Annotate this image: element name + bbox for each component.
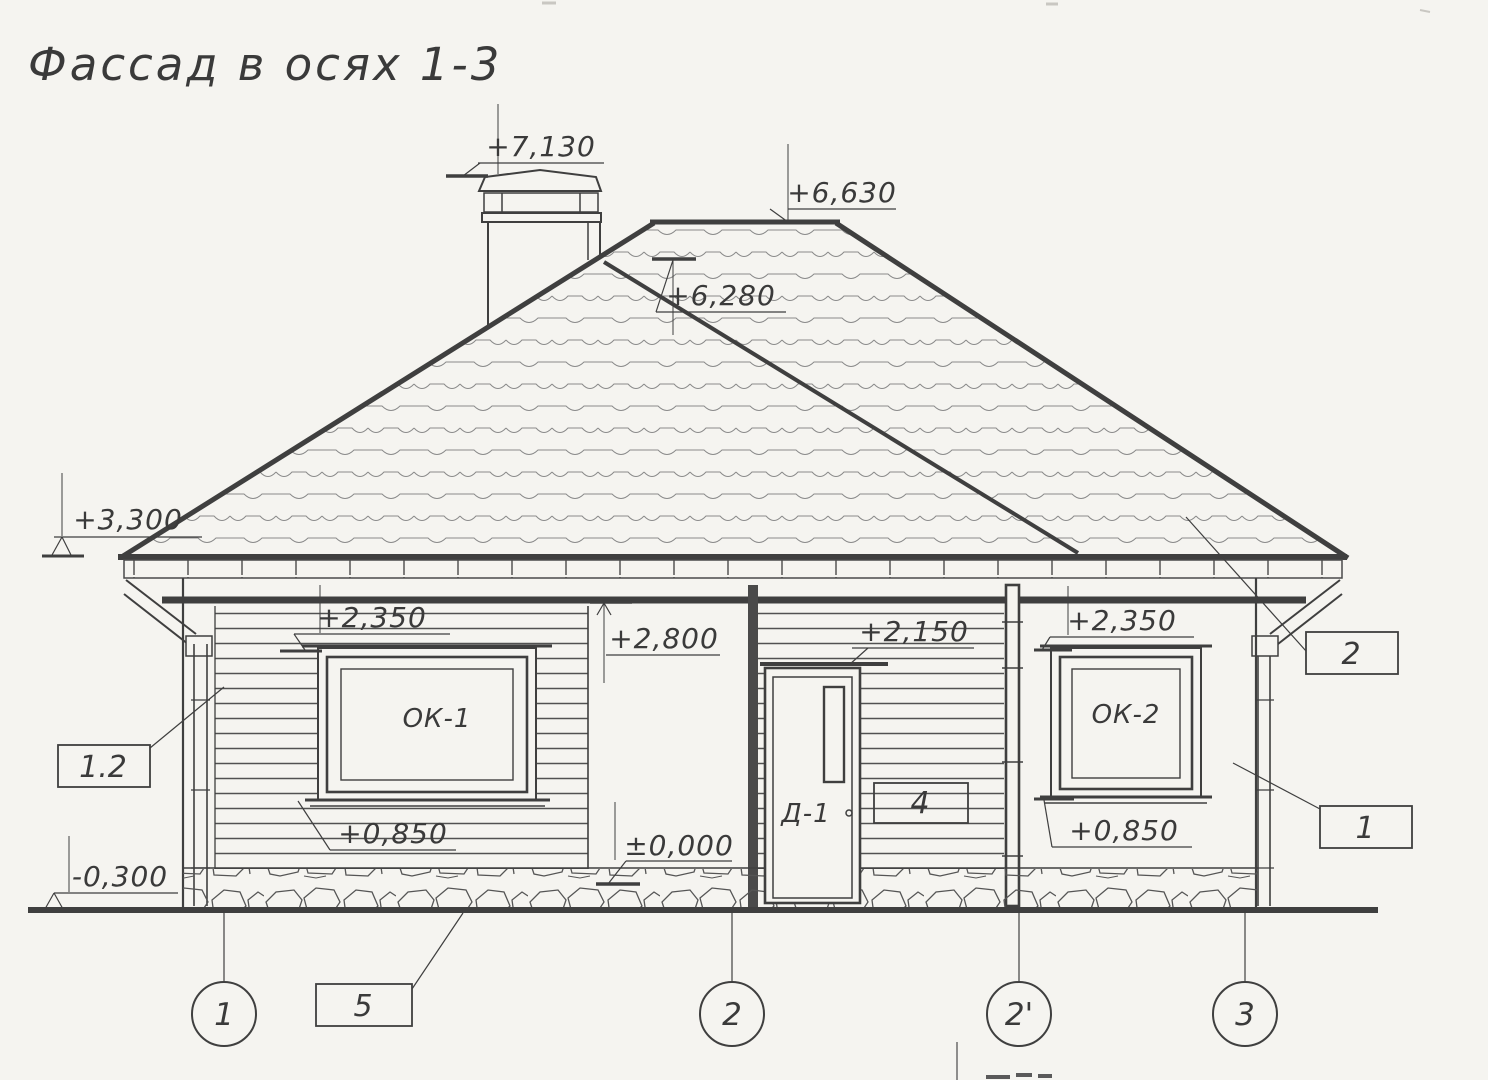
svg-text:+2,800: +2,800 [609,622,719,655]
callout-wall-corner: 1.2 [58,687,224,787]
svg-text:+3,300: +3,300 [73,503,183,536]
foundation-rubble [183,869,1258,909]
door-glazing [824,687,844,782]
svg-text:1: 1 [1355,811,1374,846]
elevation-mark-window-head-right: +2,350 [1034,586,1194,650]
foundation [183,868,1258,909]
chimney-cap-legs [484,193,598,212]
gutter-elbow-left [126,580,196,634]
callout-foundation: 5 [316,913,463,1026]
downspout-funnel-left [186,636,212,656]
window-ok2-label: ОК-2 [1092,700,1161,730]
elevation-mark-porch-ceiling: +2,800 [590,602,720,683]
axis-bubble-1: 1 [192,911,256,1046]
svg-text:1: 1 [214,997,234,1033]
svg-text:2': 2' [1005,997,1033,1033]
svg-text:2: 2 [1341,637,1360,672]
window-ok1-label: ОК-1 [403,704,472,734]
svg-text:1.2: 1.2 [79,750,127,785]
fascia-band [124,560,1342,578]
roof [118,222,1348,558]
roof-shingle-field [128,225,1338,553]
downspout-mid [1002,585,1023,906]
svg-text:+2,350: +2,350 [1067,604,1177,637]
chimney-cap-top [479,170,601,191]
axis-bubble-2prime: 2' [987,908,1051,1046]
facade-drawing-sheet: Фассад в осях 1-3 [0,0,1488,1080]
svg-text:-0,300: -0,300 [72,860,168,893]
svg-text:+6,630: +6,630 [787,176,897,209]
svg-text:+2,150: +2,150 [859,615,969,648]
svg-text:+7,130: +7,130 [486,130,596,163]
elevation-mark-chimney-top: +7,130 [446,104,604,176]
elevation-mark-ground: -0,300 [45,836,178,909]
svg-text:±0,000: ±0,000 [624,829,734,862]
axis-bubble-3: 3 [1213,908,1277,1046]
svg-text:4: 4 [910,786,929,821]
elevation-mark-ridge: +6,630 [770,144,897,222]
window-ok2: ОК-2 [1040,646,1212,803]
callout-right-wall: 1 [1233,763,1412,848]
svg-text:+2,350: +2,350 [317,601,427,634]
elevation-mark-window-sill-right: +0,850 [1034,799,1192,847]
post-axis-2 [748,585,758,908]
svg-text:+0,850: +0,850 [1069,814,1179,847]
chimney-collar [482,213,601,222]
svg-text:5: 5 [353,989,372,1024]
window-ok1: ОК-1 [302,646,552,806]
page-title: Фассад в осях 1-3 [28,38,502,91]
svg-text:+0,850: +0,850 [338,817,448,850]
axis-bubble-2: 2 [700,911,764,1046]
svg-text:+6,280: +6,280 [666,279,776,312]
gutter-elbow-right [1270,580,1340,634]
svg-text:3: 3 [1235,997,1255,1033]
door-label: Д-1 [780,799,830,829]
svg-text:2: 2 [722,997,742,1033]
downspout-left [191,644,210,906]
